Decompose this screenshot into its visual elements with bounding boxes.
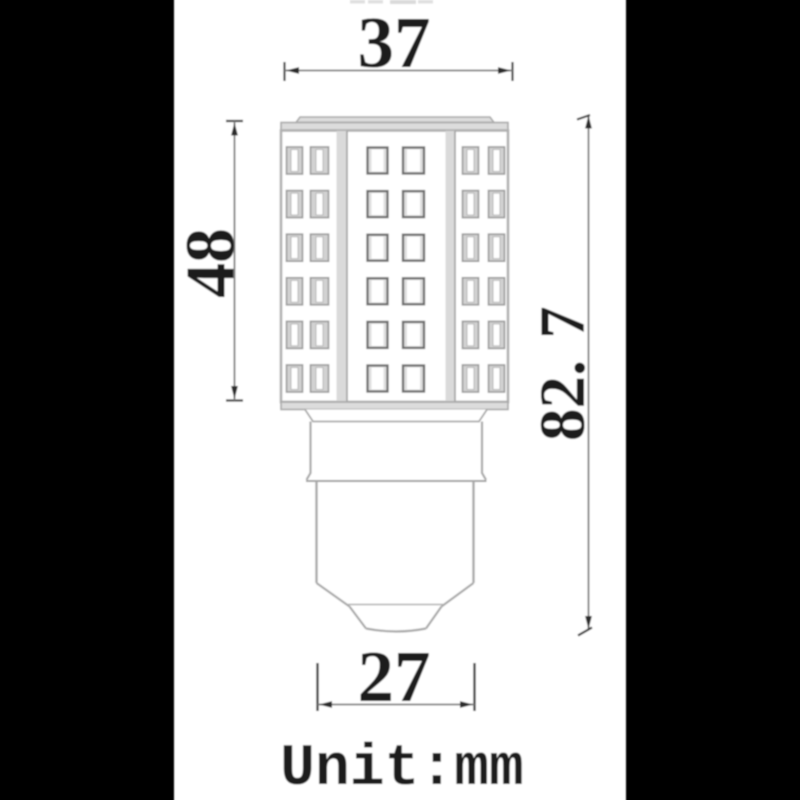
svg-text:27: 27 <box>358 636 431 717</box>
svg-text:Unit:mm: Unit:mm <box>280 737 524 800</box>
svg-text:82.7: 82.7 <box>527 306 599 441</box>
svg-text:37: 37 <box>358 2 431 83</box>
svg-text:48: 48 <box>173 228 250 298</box>
